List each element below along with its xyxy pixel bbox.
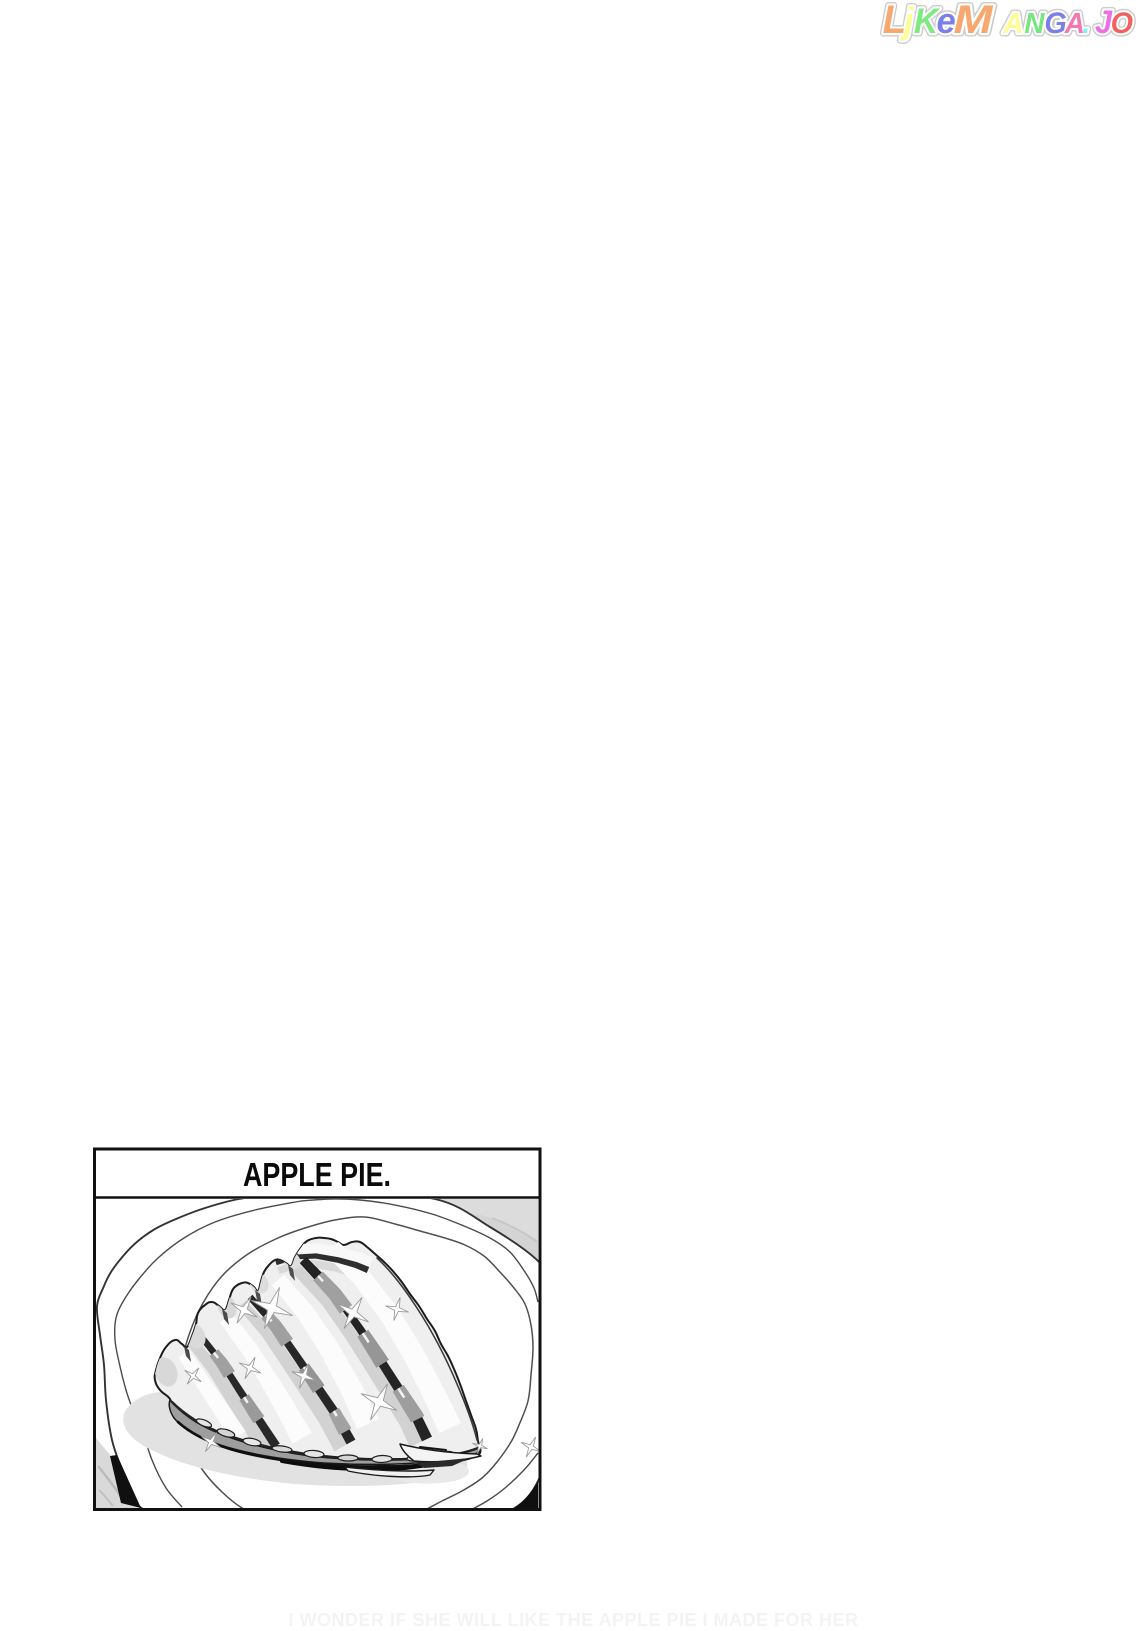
- svg-text:A: A: [1002, 7, 1023, 40]
- svg-text:APPLE PIE.: APPLE PIE.: [243, 1156, 391, 1193]
- svg-text:G: G: [1044, 6, 1066, 40]
- svg-text:O: O: [1111, 6, 1134, 40]
- svg-text:M: M: [954, 0, 995, 42]
- svg-text:L: L: [883, 0, 906, 42]
- svg-text:N: N: [1024, 7, 1045, 40]
- svg-text:.: .: [1082, 6, 1090, 40]
